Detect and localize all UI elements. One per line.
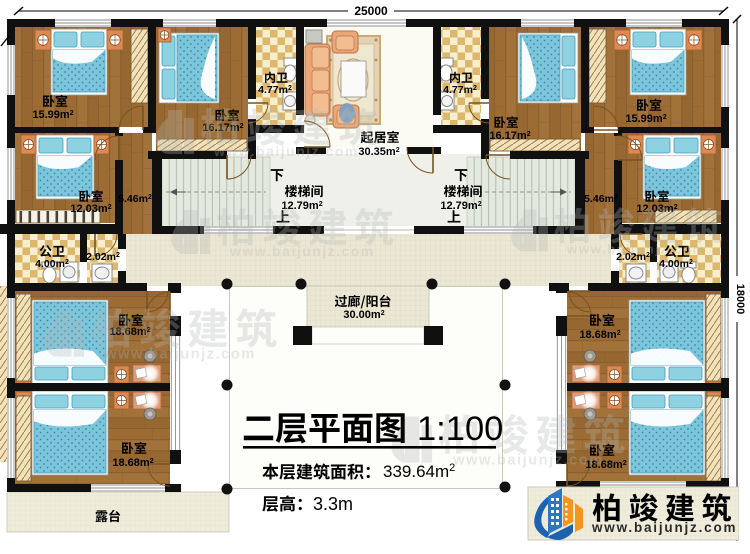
svg-text:1:100: 1:100 (417, 410, 503, 448)
svg-text:5.46m2: 5.46m2 (584, 193, 618, 205)
svg-text:30.00m2: 30.00m2 (343, 309, 384, 321)
svg-text:www.baijunjz.com: www.baijunjz.com (591, 520, 737, 535)
svg-text:2.02m2: 2.02m2 (86, 251, 120, 263)
svg-text:www.baijunjz.com: www.baijunjz.com (104, 347, 256, 363)
svg-text:www.baijunjz.com: www.baijunjz.com (213, 143, 359, 159)
svg-text:16.17m2: 16.17m2 (489, 130, 530, 142)
svg-text:4.00m2: 4.00m2 (659, 258, 693, 270)
svg-text:12.03m2: 12.03m2 (70, 203, 111, 215)
svg-text:4.00m2: 4.00m2 (35, 258, 69, 270)
svg-text:www.baijunjz.com: www.baijunjz.com (452, 453, 604, 469)
svg-text:12.79m2: 12.79m2 (440, 200, 481, 212)
svg-text:25000: 25000 (354, 4, 388, 18)
svg-text:4.77m2: 4.77m2 (258, 84, 292, 96)
svg-text:3.3m: 3.3m (313, 494, 353, 514)
svg-text:18000: 18000 (734, 284, 746, 315)
svg-text:4.77m2: 4.77m2 (443, 84, 477, 96)
svg-text:15.99m2: 15.99m2 (625, 113, 666, 125)
svg-text:www.baijunjz.com: www.baijunjz.com (229, 243, 375, 259)
svg-text:30.35m2: 30.35m2 (358, 146, 399, 158)
svg-text:5.46m2: 5.46m2 (118, 193, 152, 205)
svg-text:15.99m2: 15.99m2 (32, 109, 73, 121)
svg-text:18.68m2: 18.68m2 (112, 457, 153, 469)
svg-text:www.baijunjz.com: www.baijunjz.com (566, 241, 706, 256)
svg-text:339.64m2: 339.64m2 (383, 462, 455, 481)
svg-text:18.68m2: 18.68m2 (579, 329, 620, 341)
